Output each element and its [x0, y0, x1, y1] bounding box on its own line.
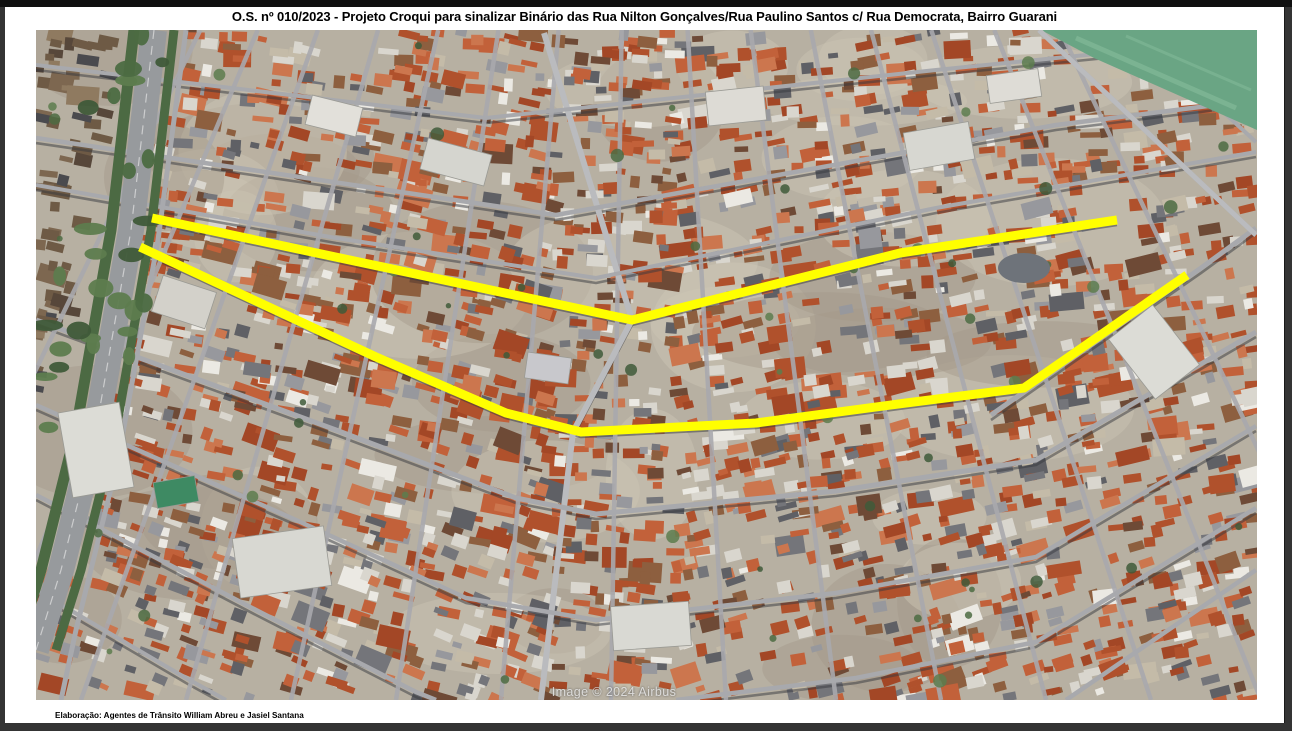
document-title: O.S. nº 010/2023 - Projeto Croqui para s… — [5, 9, 1284, 24]
document-page: O.S. nº 010/2023 - Projeto Croqui para s… — [5, 7, 1285, 723]
window-frame-edge — [0, 0, 1292, 7]
credit-line: Elaboração: Agentes de Trânsito William … — [55, 710, 304, 720]
satellite-map-canvas — [36, 30, 1257, 700]
imagery-attribution: Image © 2024 Airbus — [552, 685, 677, 699]
satellite-map-image: Image © 2024 Airbus — [36, 30, 1257, 700]
